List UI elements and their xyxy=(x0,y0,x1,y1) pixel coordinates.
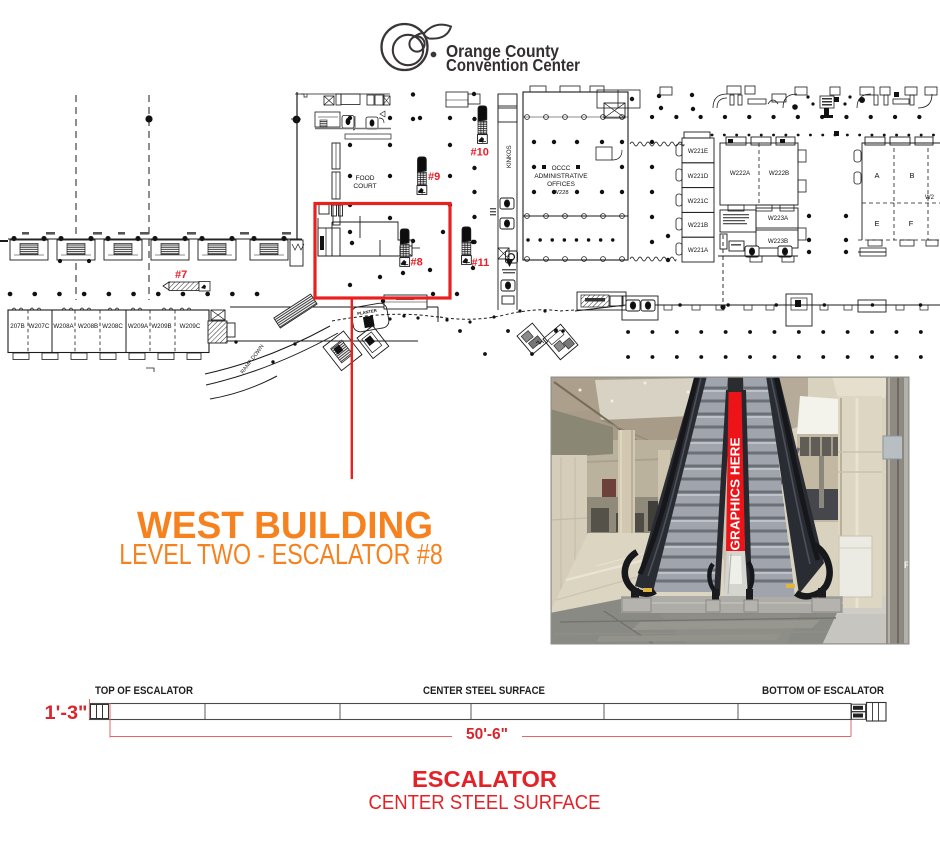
svg-text:OCCC: OCCC xyxy=(552,165,571,172)
svg-text:TOP OF ESCALATOR: TOP OF ESCALATOR xyxy=(95,685,193,697)
svg-text:B: B xyxy=(909,171,914,180)
svg-text:#7: #7 xyxy=(175,269,187,281)
svg-text:W207C: W207C xyxy=(29,323,50,330)
svg-text:W221B: W221B xyxy=(688,222,708,229)
svg-text:#9: #9 xyxy=(428,171,440,183)
svg-text:KINKOS: KINKOS xyxy=(507,145,513,168)
svg-text:W2: W2 xyxy=(925,195,935,201)
svg-text:BOTTOM OF ESCALATOR: BOTTOM OF ESCALATOR xyxy=(762,685,884,697)
svg-text:GRAPHICS HERE: GRAPHICS HERE xyxy=(729,438,743,551)
svg-text:W208C: W208C xyxy=(102,323,123,330)
svg-text:W221A: W221A xyxy=(688,247,709,254)
svg-text:COURT: COURT xyxy=(353,183,376,190)
svg-text:Convention Center: Convention Center xyxy=(446,55,580,75)
svg-text:W223A: W223A xyxy=(768,215,789,222)
svg-text:W223B: W223B xyxy=(768,238,788,245)
svg-text:W208B: W208B xyxy=(78,323,98,330)
svg-text:1'-3": 1'-3" xyxy=(45,702,88,724)
svg-text:#10: #10 xyxy=(471,147,489,159)
svg-text:CENTER STEEL SURFACE: CENTER STEEL SURFACE xyxy=(369,791,601,814)
svg-text:W209B: W209B xyxy=(151,323,171,330)
svg-text:OFFICES: OFFICES xyxy=(547,181,575,188)
svg-text:E: E xyxy=(874,219,879,228)
svg-text:RAMP DOWN: RAMP DOWN xyxy=(240,344,266,375)
svg-text:FOOD: FOOD xyxy=(355,175,374,182)
svg-text:#11: #11 xyxy=(472,257,490,269)
svg-text:A: A xyxy=(874,171,879,180)
svg-text:F: F xyxy=(909,219,914,228)
svg-text:W221E: W221E xyxy=(688,148,708,155)
svg-text:ESCALATOR: ESCALATOR xyxy=(412,766,557,792)
svg-text:PLANTER: PLANTER xyxy=(357,308,377,316)
svg-text:#8: #8 xyxy=(411,257,423,269)
svg-text:50'-6": 50'-6" xyxy=(466,726,508,743)
svg-text:ADMINISTRATIVE: ADMINISTRATIVE xyxy=(534,173,587,180)
svg-text:LEVEL TWO - ESCALATOR #8: LEVEL TWO - ESCALATOR #8 xyxy=(119,539,443,571)
svg-text:W222B: W222B xyxy=(769,170,789,177)
svg-text:W208A: W208A xyxy=(53,323,74,330)
svg-text:CENTER STEEL SURFACE: CENTER STEEL SURFACE xyxy=(423,685,545,697)
svg-text:W209A: W209A xyxy=(128,323,149,330)
svg-text:207B: 207B xyxy=(10,323,24,330)
svg-text:W221D: W221D xyxy=(688,173,709,180)
svg-text:W221C: W221C xyxy=(688,198,709,205)
svg-text:W209C: W209C xyxy=(180,323,201,330)
svg-text:W222A: W222A xyxy=(730,170,751,177)
